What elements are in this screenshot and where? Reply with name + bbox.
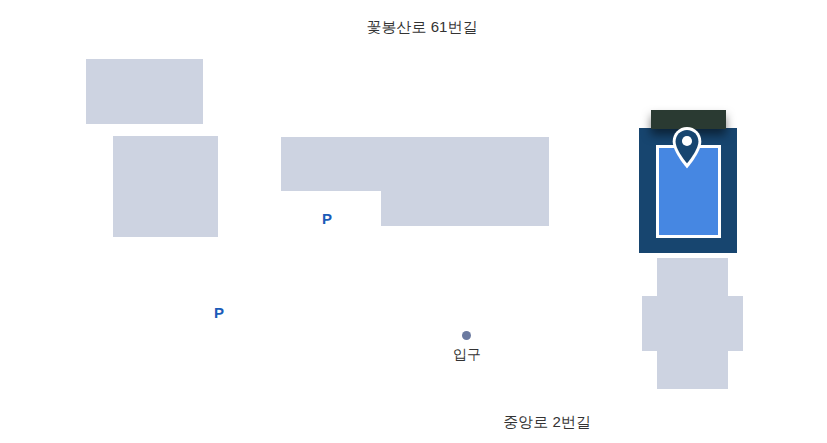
street-label-top: 꽃봉산로 61번길	[367, 18, 478, 37]
building	[281, 137, 549, 191]
entrance-label: 입구	[453, 346, 481, 364]
entrance-dot-icon	[462, 331, 471, 340]
street-label-bottom: 중앙로 2번길	[503, 413, 591, 432]
parking-marker-2: P	[214, 304, 224, 321]
parking-marker-1: P	[322, 210, 332, 227]
building	[113, 136, 218, 237]
building	[86, 59, 203, 124]
building	[381, 191, 549, 226]
location-map: 꽃봉산로 61번길 P P 입구 중앙로 2번길	[0, 0, 827, 443]
building	[642, 296, 743, 351]
location-pin-icon	[670, 126, 704, 170]
